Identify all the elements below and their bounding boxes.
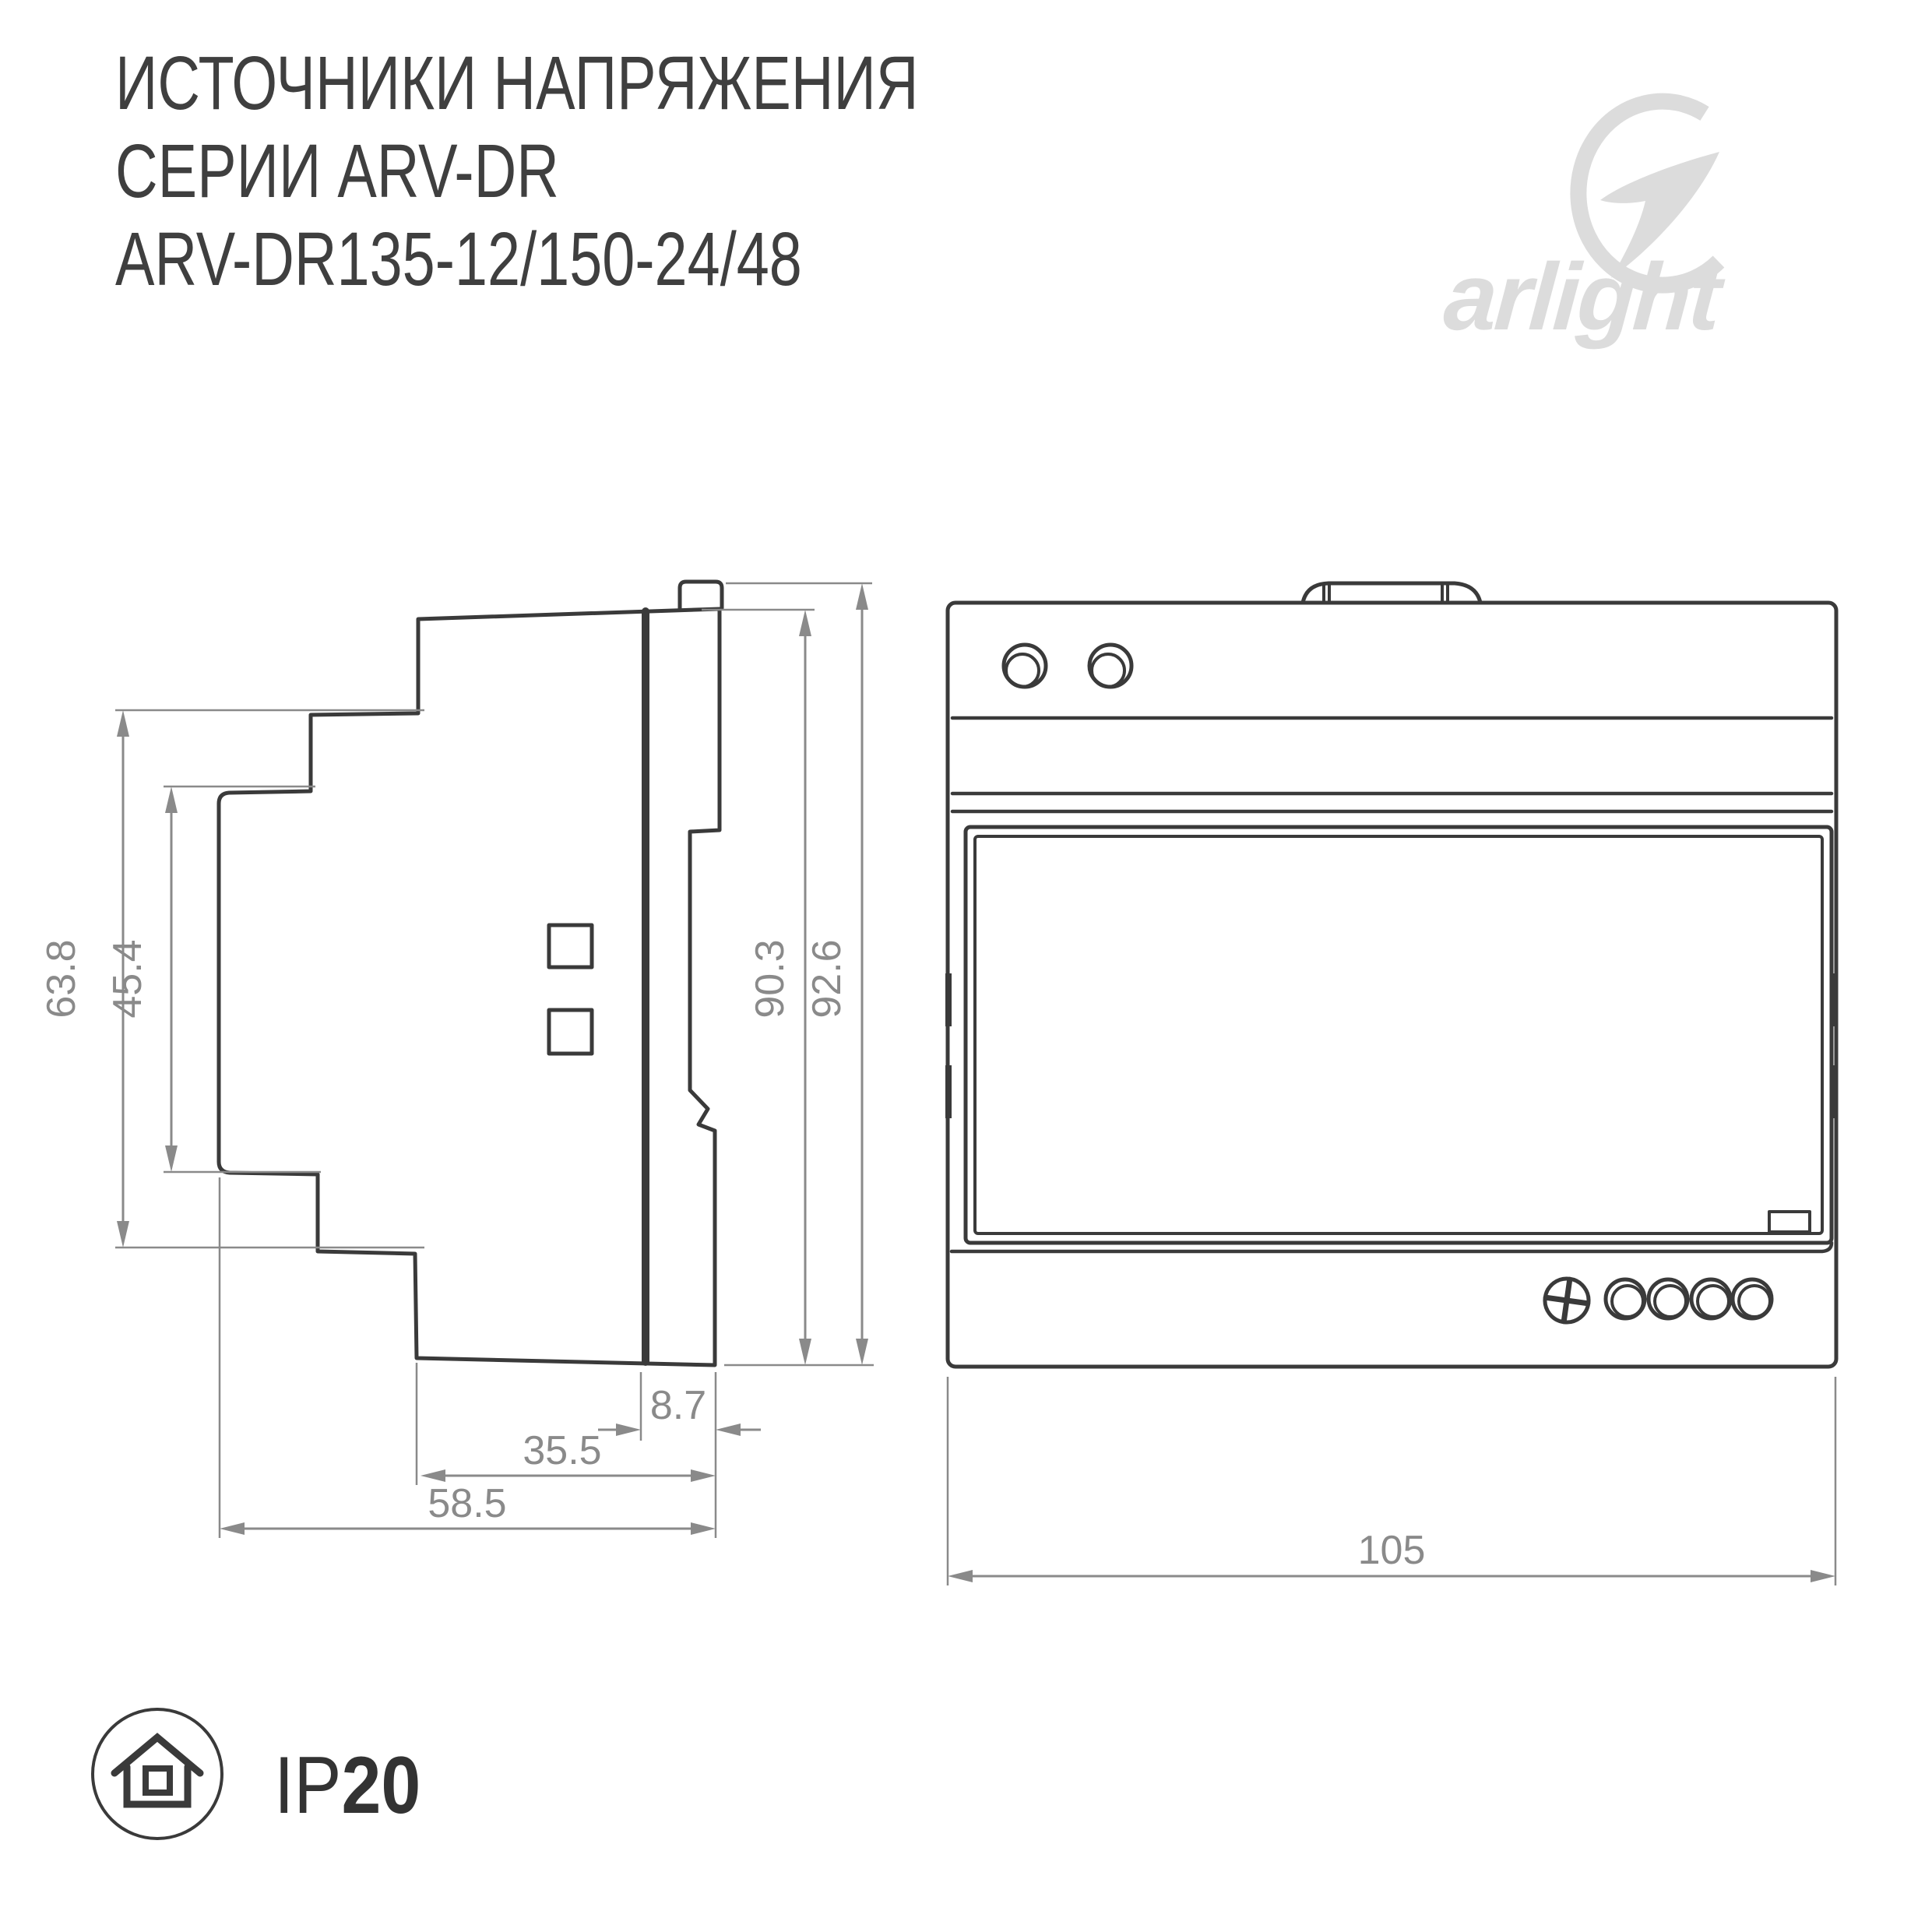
dim-label-8-7: 8.7: [650, 1383, 706, 1428]
dim-label-63-8: 63.8: [39, 939, 84, 1018]
ip-rating-label: IP20: [274, 1740, 421, 1832]
dim-label-35-5: 35.5: [523, 1428, 601, 1473]
front-view-small-slot: [1769, 1212, 1810, 1232]
front-view-upper-band-lines: [952, 718, 1832, 811]
side-view-square-upper: [549, 925, 592, 967]
dim-label-45-4: 45.4: [105, 939, 150, 1018]
technical-drawing: 63.8 45.4 90.3 92.6 8.7 35.5 58.5 105: [0, 0, 1932, 1932]
dimension-45-4: [164, 787, 321, 1172]
spec-sheet-page: ИСТОЧНИКИ НАПРЯЖЕНИЯ СЕРИИ ARV-DR ARV-DR…: [0, 0, 1932, 1932]
front-view-top-tab-marks: [1324, 584, 1448, 602]
ip-rating-prefix: IP: [274, 1740, 341, 1831]
ip-rating-value: 20: [341, 1740, 421, 1831]
ip-badge: [91, 1708, 223, 1840]
side-view-square-lower: [549, 1010, 592, 1054]
front-view-edge-notches: [945, 973, 1837, 1118]
dim-label-92-6: 92.6: [804, 939, 850, 1018]
dim-label-90-3: 90.3: [748, 939, 793, 1018]
front-view-label-area-inner: [975, 836, 1822, 1233]
front-view-label-area-outer: [966, 827, 1832, 1243]
front-view-screw: [1542, 1276, 1591, 1325]
dim-label-105: 105: [1358, 1528, 1426, 1573]
house-icon: [91, 1708, 223, 1840]
front-view-terminals: [1606, 1279, 1772, 1318]
dim-label-58-5: 58.5: [428, 1481, 506, 1526]
side-view-top-tab: [680, 582, 722, 608]
front-view-knobs: [1004, 645, 1131, 687]
front-view: [945, 583, 1837, 1367]
